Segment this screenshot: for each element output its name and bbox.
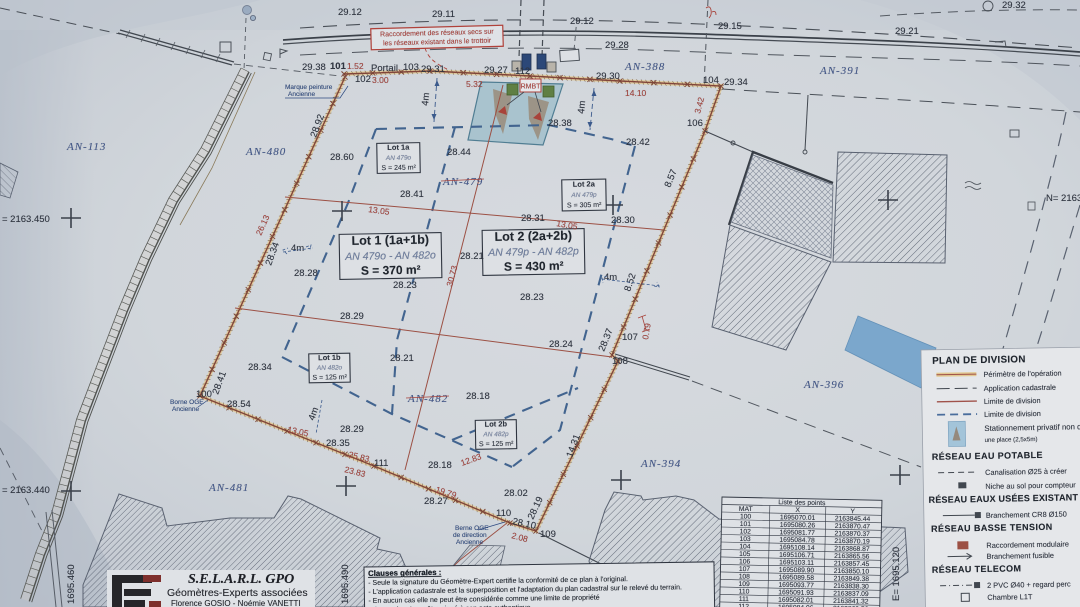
svg-text:28.34: 28.34 <box>248 362 272 373</box>
svg-text:AN 479o: AN 479o <box>385 155 412 162</box>
svg-text:104: 104 <box>703 75 719 86</box>
svg-text:108: 108 <box>739 573 751 580</box>
svg-text:100: 100 <box>740 513 752 520</box>
svg-text:28.31: 28.31 <box>521 213 545 224</box>
svg-text:AN-396: AN-396 <box>803 379 844 391</box>
svg-text:29.12: 29.12 <box>338 7 362 18</box>
svg-text:Canalisation Ø25 à créer: Canalisation Ø25 à créer <box>985 466 1067 476</box>
svg-text:28.30: 28.30 <box>611 215 635 226</box>
svg-text:111: 111 <box>739 596 750 603</box>
svg-text:AN 479p: AN 479p <box>570 192 597 199</box>
svg-text:AN-479: AN-479 <box>442 176 483 188</box>
svg-text:102: 102 <box>355 74 371 85</box>
svg-text:Application cadastrale: Application cadastrale <box>984 383 1056 393</box>
svg-text:MAT: MAT <box>739 506 753 513</box>
svg-text:S = 305 m²: S = 305 m² <box>567 202 602 210</box>
svg-text:AN 479o - AN 482o: AN 479o - AN 482o <box>344 249 436 263</box>
svg-text:28.18: 28.18 <box>466 391 490 402</box>
svg-text:29.28: 29.28 <box>605 40 629 51</box>
svg-text:Lot 1b: Lot 1b <box>318 353 341 362</box>
svg-text:109: 109 <box>540 529 556 540</box>
svg-text:109: 109 <box>739 581 751 588</box>
svg-text:29.15: 29.15 <box>718 21 742 32</box>
svg-text:28.44: 28.44 <box>447 147 471 158</box>
svg-text:RÉSEAU BASSE TENSION: RÉSEAU BASSE TENSION <box>931 522 1053 534</box>
svg-text:Limite de division: Limite de division <box>984 396 1041 406</box>
svg-text:28.54: 28.54 <box>227 399 251 410</box>
svg-text:Géomètres-Experts associées: Géomètres-Experts associées <box>167 587 308 599</box>
svg-text:1695.460: 1695.460 <box>66 564 77 604</box>
svg-text:une place (2,5x5m): une place (2,5x5m) <box>984 436 1037 444</box>
svg-text:S = 430 m²: S = 430 m² <box>504 259 564 274</box>
svg-text:AN 482o: AN 482o <box>316 364 343 371</box>
svg-text:AN-481: AN-481 <box>208 482 249 494</box>
svg-text:28.27: 28.27 <box>424 496 448 507</box>
svg-text:S = 370 m²: S = 370 m² <box>361 263 421 278</box>
svg-text:112: 112 <box>738 603 749 607</box>
svg-text:3.00: 3.00 <box>372 75 389 85</box>
svg-text:28.29: 28.29 <box>340 424 364 435</box>
svg-text:Stationnement privatif non d: Stationnement privatif non d <box>984 422 1080 433</box>
svg-text:4m: 4m <box>576 100 588 114</box>
svg-text:4m: 4m <box>291 243 304 254</box>
svg-text:X: X <box>795 507 800 514</box>
svg-text:Lot 2 (2a+2b): Lot 2 (2a+2b) <box>494 229 572 244</box>
svg-text:1.52: 1.52 <box>347 61 364 71</box>
svg-text:28.38: 28.38 <box>548 118 572 129</box>
svg-text:Clauses générales :: Clauses générales : <box>368 568 441 578</box>
svg-text:104: 104 <box>739 543 751 550</box>
svg-text:AN-482: AN-482 <box>407 393 448 405</box>
svg-text:Raccordement modulaire: Raccordement modulaire <box>986 539 1069 549</box>
svg-text:29.27: 29.27 <box>484 65 508 76</box>
svg-text:RMBT: RMBT <box>521 84 542 91</box>
svg-text:29.31: 29.31 <box>421 64 445 75</box>
svg-text:29.38: 29.38 <box>302 62 326 73</box>
svg-text:28.23: 28.23 <box>393 280 417 291</box>
svg-text:29.12: 29.12 <box>570 16 594 27</box>
svg-text:29.21: 29.21 <box>895 26 919 37</box>
svg-text:S = 125 m²: S = 125 m² <box>312 374 347 382</box>
svg-text:2 PVC Ø40 + regard perc: 2 PVC Ø40 + regard perc <box>987 579 1071 589</box>
svg-text:= 2163.450: = 2163.450 <box>2 214 50 225</box>
svg-text:108: 108 <box>612 356 628 367</box>
svg-text:Ancienne: Ancienne <box>288 91 315 98</box>
svg-text:29.30: 29.30 <box>596 71 620 82</box>
svg-text:28.23: 28.23 <box>520 292 544 303</box>
svg-text:29.34: 29.34 <box>724 77 748 88</box>
svg-text:28.42: 28.42 <box>626 137 650 148</box>
svg-text:4m: 4m <box>420 92 432 106</box>
svg-text:AN 482p: AN 482p <box>482 431 509 438</box>
svg-text:1695.490: 1695.490 <box>340 564 351 604</box>
svg-text:103: 103 <box>739 536 751 543</box>
svg-text:28.24: 28.24 <box>549 339 573 350</box>
svg-text:Y: Y <box>850 508 855 515</box>
svg-text:Branchement fusible: Branchement fusible <box>986 551 1054 561</box>
svg-text:AN 479p - AN 482p: AN 479p - AN 482p <box>487 245 579 259</box>
svg-text:28.29: 28.29 <box>340 311 364 322</box>
svg-text:110: 110 <box>739 588 750 595</box>
svg-text:Branchement CR8 Ø150: Branchement CR8 Ø150 <box>986 510 1067 520</box>
svg-text:S = 245 m²: S = 245 m² <box>381 164 416 172</box>
svg-text:Périmètre de l'opération: Périmètre de l'opération <box>983 369 1061 379</box>
svg-text:110: 110 <box>496 508 511 519</box>
svg-text:106: 106 <box>739 558 751 565</box>
svg-text:28.35: 28.35 <box>326 438 350 449</box>
svg-text:111: 111 <box>374 458 388 469</box>
svg-text:106: 106 <box>687 118 703 129</box>
svg-text:Lot 1a: Lot 1a <box>387 143 410 152</box>
svg-text:Borne OGE: Borne OGE <box>170 399 204 406</box>
svg-text:28.41: 28.41 <box>400 189 424 200</box>
svg-text:Florence GOSIO - Noémie VANETT: Florence GOSIO - Noémie VANETTI <box>171 599 301 607</box>
svg-text:AN-113: AN-113 <box>66 141 106 153</box>
svg-text:Lot 2b: Lot 2b <box>484 419 507 428</box>
svg-text:29.32: 29.32 <box>1002 0 1026 11</box>
svg-text:28.60: 28.60 <box>330 152 354 163</box>
svg-text:Niche au sol pour compteur: Niche au sol pour compteur <box>985 480 1076 491</box>
svg-text:AN-394: AN-394 <box>640 458 681 470</box>
svg-text:Ancienne: Ancienne <box>172 406 199 413</box>
svg-text:= 2163.440: = 2163.440 <box>2 485 50 496</box>
svg-text:101: 101 <box>330 61 347 72</box>
svg-text:28.28: 28.28 <box>294 268 318 279</box>
svg-text:RÉSEAU EAU POTABLE: RÉSEAU EAU POTABLE <box>932 450 1043 462</box>
svg-text:Chambre L1T: Chambre L1T <box>987 592 1033 602</box>
svg-text:5.32: 5.32 <box>466 79 483 89</box>
svg-text:N= 2163.5: N= 2163.5 <box>1046 193 1080 204</box>
svg-text:28.21: 28.21 <box>390 353 414 364</box>
svg-text:Limite de division: Limite de division <box>984 409 1041 419</box>
svg-text:AN-388: AN-388 <box>624 61 665 73</box>
svg-text:AN-480: AN-480 <box>245 146 286 158</box>
svg-text:RÉSEAU TELECOM: RÉSEAU TELECOM <box>932 563 1022 575</box>
svg-text:4m: 4m <box>604 272 617 283</box>
svg-text:AN-391: AN-391 <box>819 65 860 77</box>
svg-text:29.11: 29.11 <box>432 9 455 20</box>
svg-text:28.21: 28.21 <box>460 251 484 262</box>
svg-text:107: 107 <box>739 566 751 573</box>
svg-text:S.E.L.A.R.L. GPO: S.E.L.A.R.L. GPO <box>188 572 294 587</box>
svg-text:107: 107 <box>622 332 638 343</box>
svg-text:Lot 1 (1a+1b): Lot 1 (1a+1b) <box>351 233 429 248</box>
svg-text:103: 103 <box>403 62 419 73</box>
svg-text:105: 105 <box>739 551 751 558</box>
svg-text:de direction: de direction <box>453 532 487 539</box>
svg-text:28.02: 28.02 <box>504 488 528 499</box>
svg-text:S = 125 m²: S = 125 m² <box>479 441 514 449</box>
svg-text:102: 102 <box>740 528 752 535</box>
svg-text:14.10: 14.10 <box>625 88 647 98</box>
svg-text:Portail: Portail <box>371 63 398 74</box>
svg-text:PLAN DE DIVISION: PLAN DE DIVISION <box>932 354 1026 367</box>
svg-text:E= 1695.120: E= 1695.120 <box>891 547 902 601</box>
svg-text:112: 112 <box>515 66 530 77</box>
svg-text:Marque peinture: Marque peinture <box>285 84 333 91</box>
svg-text:28.18: 28.18 <box>428 460 452 471</box>
svg-text:Lot 2a: Lot 2a <box>573 179 596 188</box>
svg-text:101: 101 <box>740 521 752 528</box>
